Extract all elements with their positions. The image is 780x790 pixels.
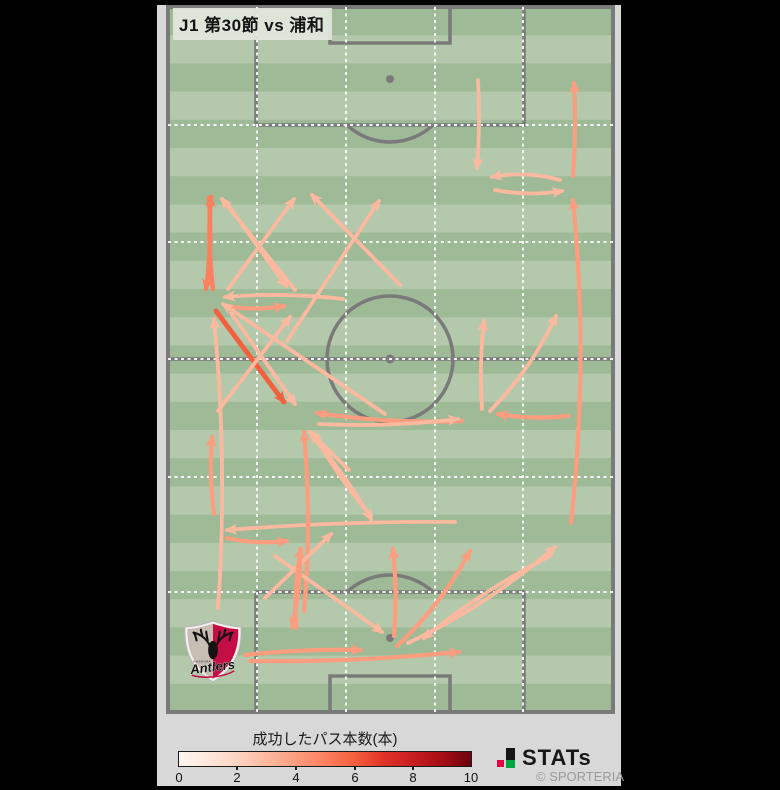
pass-arrow xyxy=(477,80,479,168)
stats-wordmark: STATs xyxy=(522,745,592,771)
pitch-stripe xyxy=(168,684,613,713)
pitch-stripe xyxy=(168,176,613,205)
pitch-stripe xyxy=(168,458,613,487)
pitch-stripe xyxy=(168,233,613,262)
kashima-antlers-logo: KASHIMA Antlers xyxy=(182,620,244,684)
page-title: J1 第30節 vs 浦和 xyxy=(173,8,332,40)
copyright-text: © SPORTERIA xyxy=(536,769,624,784)
pitch-stripe xyxy=(168,204,613,233)
pitch-stripe xyxy=(168,486,613,515)
pass-map-figure: J1 第30節 vs 浦和 KASHIMA Antlers 成功したパス本数(本… xyxy=(0,0,780,790)
stats-bar-chart-icon xyxy=(497,748,517,768)
pitch-stripe xyxy=(168,430,613,459)
logo-deer-head xyxy=(208,641,218,659)
pass-arrow xyxy=(573,83,575,176)
pitch xyxy=(0,0,780,790)
penalty-spot-top xyxy=(386,75,394,83)
pitch-stripe xyxy=(168,148,613,177)
pitch-stripe xyxy=(168,92,613,121)
